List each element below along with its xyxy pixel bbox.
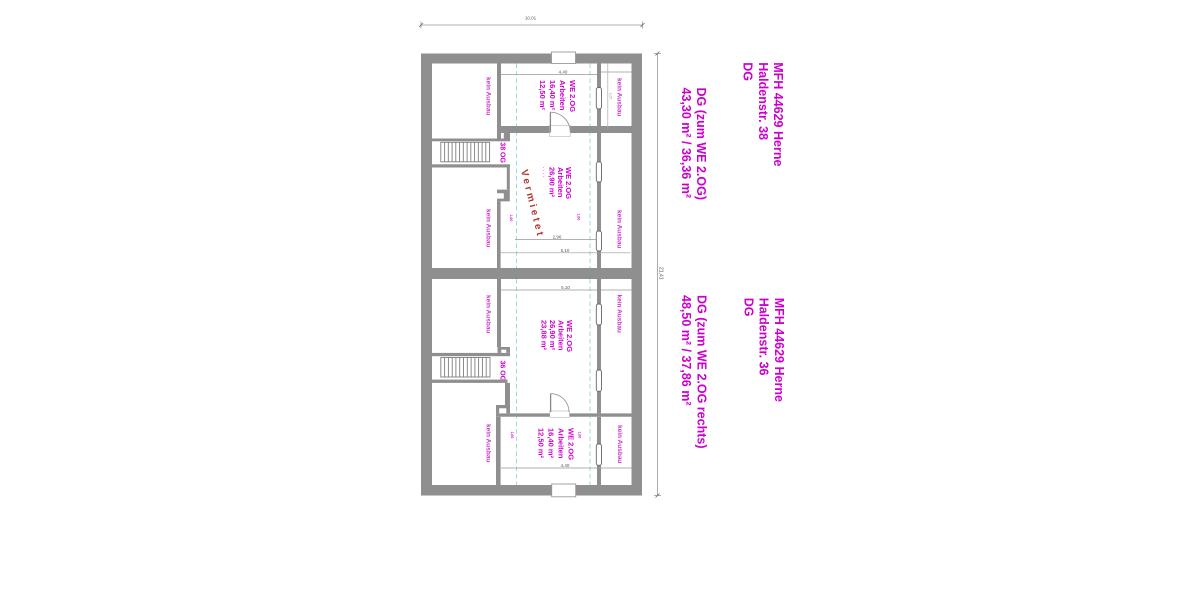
svg-text:21,41: 21,41 — [658, 267, 664, 280]
svg-text:4,40: 4,40 — [559, 70, 568, 75]
svg-text:kein Ausbau: kein Ausbau — [484, 424, 491, 462]
svg-text:DG (zum WE 2.OG) 43,30 m²: DG (zum WE 2.OG) 43,30 m² / 36,36 m² — [679, 88, 708, 204]
svg-text:38 OG: 38 OG — [498, 142, 505, 163]
svg-text:2,96: 2,96 — [553, 235, 562, 240]
svg-text:kein Ausbau: kein Ausbau — [484, 209, 491, 247]
svg-text:1,00: 1,00 — [577, 214, 581, 221]
svg-text:kein Ausbau: kein Ausbau — [615, 78, 622, 116]
svg-text:kein Ausbau: kein Ausbau — [616, 425, 623, 463]
svg-text:WE 2.OG Arbeiten 16,40: WE 2.OG Arbeiten 16,40 m² 12,50 m² — [538, 80, 577, 114]
svg-text:1,00: 1,00 — [509, 215, 513, 222]
svg-text:kein Ausbau: kein Ausbau — [615, 210, 622, 248]
svg-text:5,10: 5,10 — [561, 285, 570, 290]
svg-text:WE 2.OG Arbeiten 16,40: WE 2.OG Arbeiten 16,40 m² 12,50 m² — [537, 428, 576, 462]
svg-text:WE 2.OG Arbeiten 26,90: WE 2.OG Arbeiten 26,90 m² 23,88 m² — [540, 320, 575, 354]
svg-text:1,00: 1,00 — [578, 432, 582, 439]
svg-text:kein Ausbau: kein Ausbau — [484, 77, 491, 115]
svg-text:5,10: 5,10 — [561, 248, 570, 253]
svg-text:1,00: 1,00 — [510, 432, 514, 439]
svg-text:kein Ausbau: kein Ausbau — [484, 295, 491, 333]
svg-text:4,40: 4,40 — [561, 463, 570, 468]
svg-text:10,01: 10,01 — [525, 16, 537, 21]
svg-text:1,07: 1,07 — [608, 93, 612, 99]
svg-text:36 OG: 36 OG — [498, 361, 505, 382]
svg-text:kein Ausbau: kein Ausbau — [615, 295, 622, 333]
